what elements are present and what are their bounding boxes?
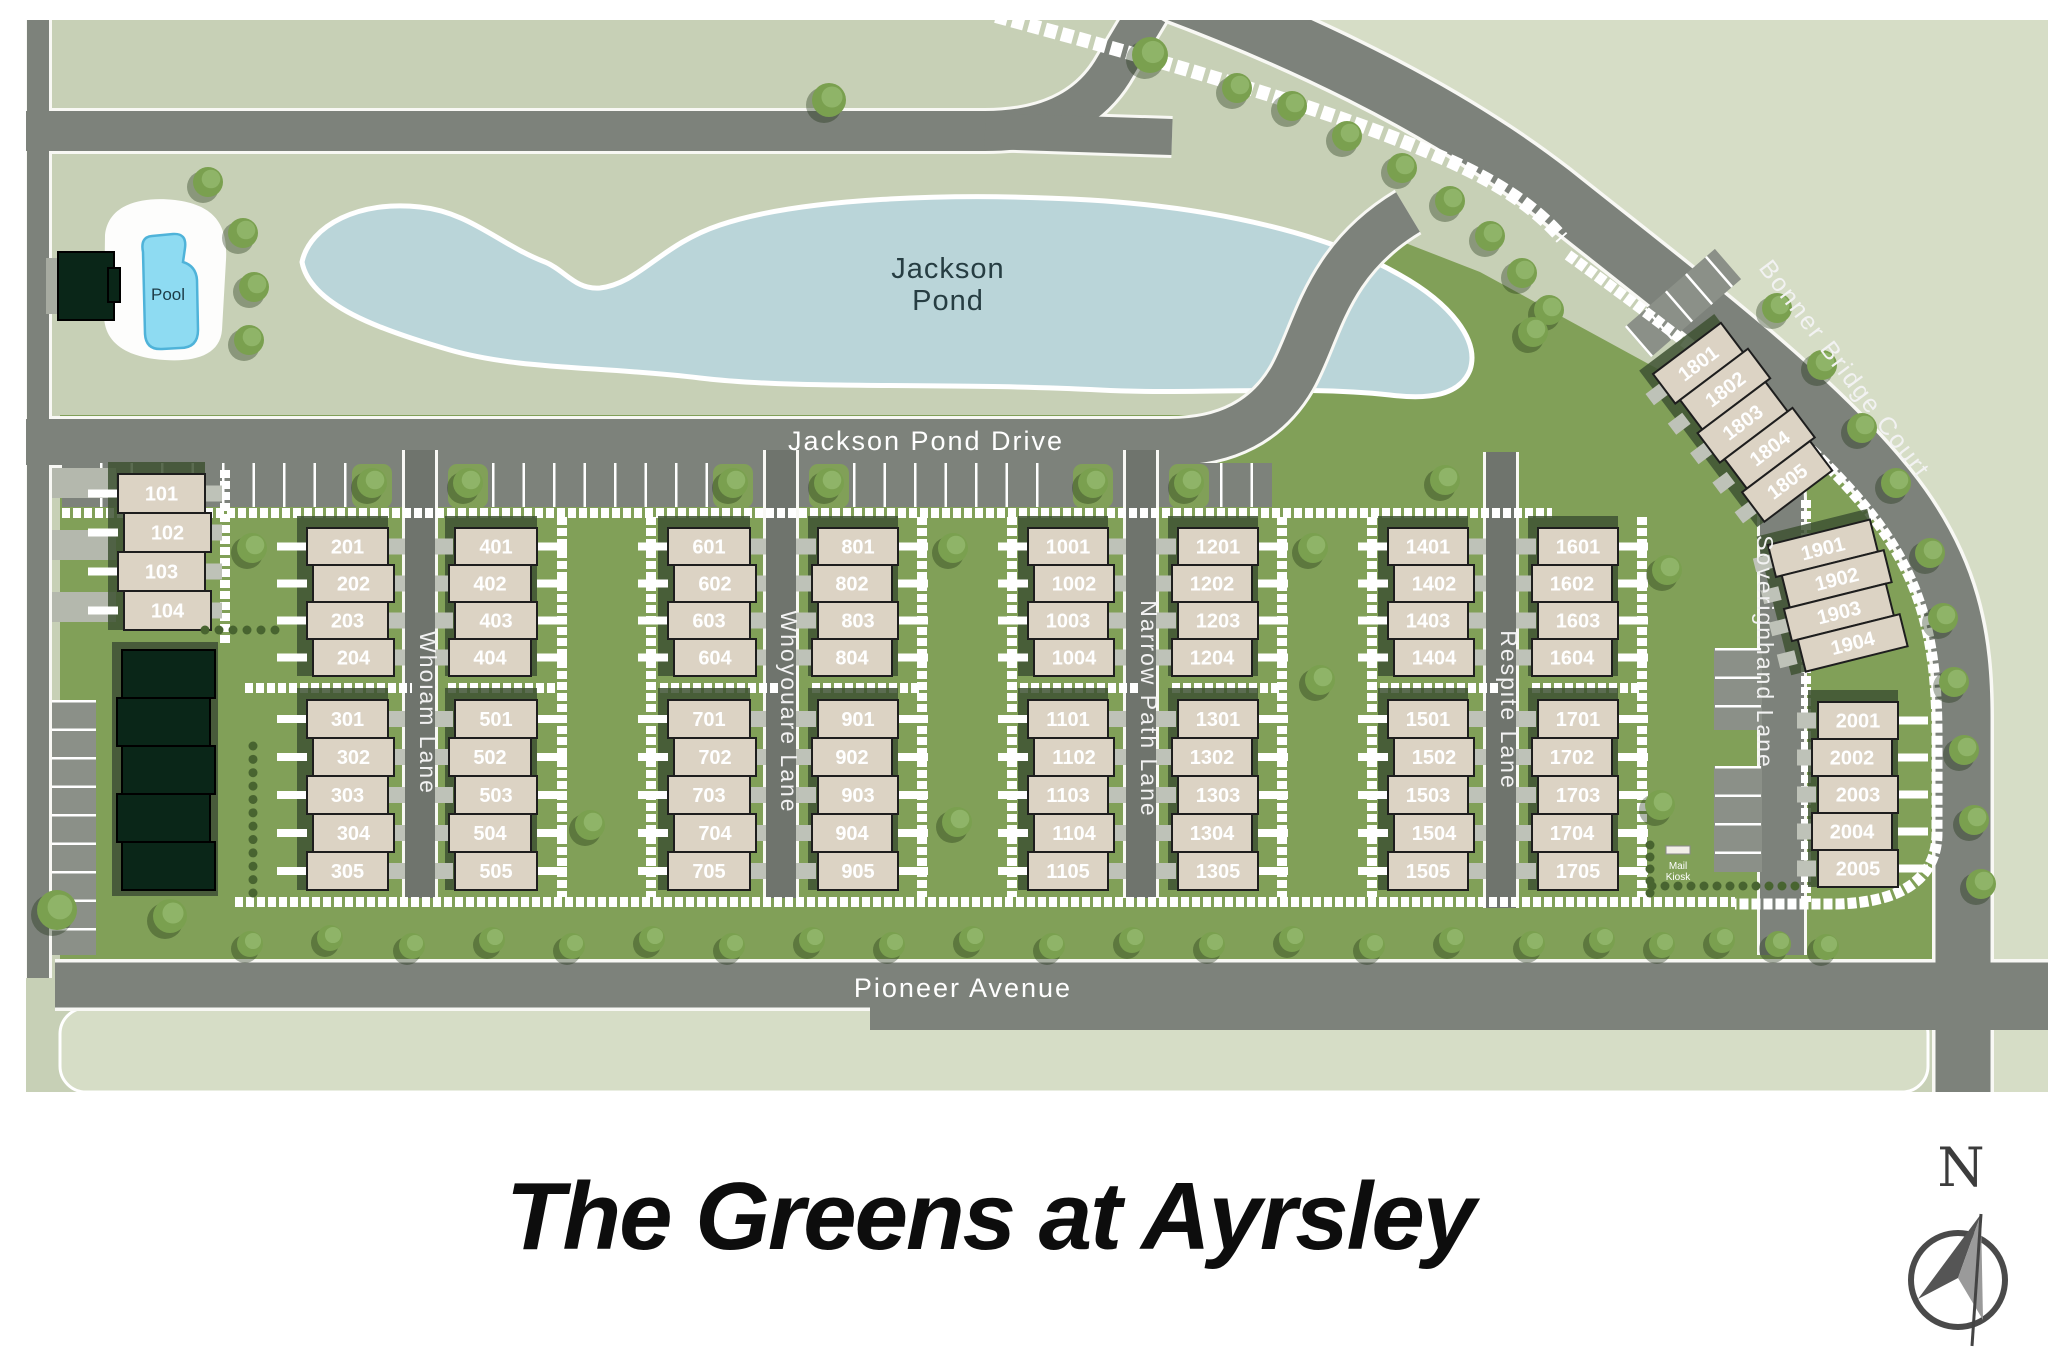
hedge-shrub (249, 822, 258, 831)
unit-label-702: 702 (698, 747, 731, 769)
unit-label-1004: 1004 (1052, 648, 1097, 670)
unit-label-905: 905 (841, 861, 874, 883)
unit-label-204: 204 (337, 648, 371, 670)
unit-label-803: 803 (841, 611, 874, 633)
street-label-whoyouare-lane: Whoyouare Lane (776, 610, 802, 813)
unit-label-604: 604 (698, 648, 732, 670)
hedge-shrub (249, 848, 258, 857)
street-label-soverignhand-lane: Soverignhand Lane (1752, 535, 1778, 769)
unit-label-2005: 2005 (1836, 859, 1881, 881)
site-plan-map: 1011021031042012022032043013023033043054… (0, 0, 2048, 1100)
unit-label-902: 902 (835, 747, 868, 769)
hedge-shrub (249, 862, 258, 871)
unit-label-1505: 1505 (1406, 861, 1451, 883)
unit-label-1604: 1604 (1550, 648, 1595, 670)
unit-label-402: 402 (473, 574, 506, 596)
unit-label-1704: 1704 (1550, 823, 1595, 845)
compass: N (1896, 1138, 2026, 1358)
hedge-shrub (249, 808, 258, 817)
existing-buildings (112, 642, 218, 896)
hedge-shrub (257, 626, 266, 635)
unit-label-201: 201 (331, 537, 364, 559)
unit-label-1603: 1603 (1556, 611, 1601, 633)
unit-label-1703: 1703 (1556, 785, 1601, 807)
unit-label-1502: 1502 (1412, 747, 1457, 769)
site-plan-page: 1011021031042012022032043013023033043054… (0, 0, 2048, 1365)
unit-label-1601: 1601 (1556, 537, 1601, 559)
hedge-shrub (1646, 853, 1655, 862)
existing-building (122, 842, 215, 890)
unit-label-1204: 1204 (1190, 648, 1235, 670)
hedge-shrub (1713, 882, 1722, 891)
block-101: 101102103104 (88, 462, 222, 630)
hedge-shrub (249, 835, 258, 844)
unit-label-504: 504 (473, 823, 507, 845)
existing-building (122, 746, 215, 794)
hedge-shrub (229, 626, 238, 635)
unit-label-802: 802 (835, 574, 868, 596)
unit-label-1201: 1201 (1196, 537, 1241, 559)
unit-label-1303: 1303 (1196, 785, 1241, 807)
unit-label-1203: 1203 (1196, 611, 1241, 633)
unit-label-1403: 1403 (1406, 611, 1451, 633)
unit-label-804: 804 (835, 648, 869, 670)
hedge-shrub (271, 626, 280, 635)
mail-kiosk-label-2: Kiosk (1666, 872, 1691, 883)
unit-label-1104: 1104 (1052, 823, 1096, 845)
unit-label-505: 505 (479, 861, 512, 883)
hedge-shrub (1739, 882, 1748, 891)
unit-label-701: 701 (692, 709, 725, 731)
unit-label-1504: 1504 (1412, 823, 1457, 845)
unit-label-2002: 2002 (1830, 748, 1875, 770)
unit-label-404: 404 (473, 648, 507, 670)
hedge-shrub (1791, 882, 1800, 891)
unit-label-2001: 2001 (1836, 711, 1881, 733)
street-label-whoiam-lane: Whoiam Lane (415, 631, 441, 795)
unit-label-1002: 1002 (1052, 574, 1097, 596)
unit-label-601: 601 (692, 537, 725, 559)
existing-building (117, 794, 210, 842)
pool-label: Pool (151, 285, 185, 304)
unit-label-801: 801 (841, 537, 874, 559)
hedge-shrub (249, 889, 258, 898)
hedge-shrub (249, 755, 258, 764)
unit-label-502: 502 (473, 747, 506, 769)
unit-label-1102: 1102 (1052, 747, 1095, 769)
unit-label-101: 101 (145, 484, 178, 506)
unit-label-1101: 1101 (1046, 709, 1089, 731)
street-label-respite-lane: Respite Lane (1496, 630, 1522, 790)
unit-label-304: 304 (337, 823, 371, 845)
unit-label-1501: 1501 (1406, 709, 1451, 731)
compass-north-label: N (1896, 1138, 2026, 1198)
unit-label-704: 704 (698, 823, 732, 845)
unit-label-303: 303 (331, 785, 364, 807)
hedge-shrub (1646, 865, 1655, 874)
unit-label-403: 403 (479, 611, 512, 633)
hedge-shrub (243, 626, 252, 635)
unit-label-1301: 1301 (1196, 709, 1241, 731)
unit-label-202: 202 (337, 574, 370, 596)
unit-label-602: 602 (698, 574, 731, 596)
unit-label-1702: 1702 (1550, 747, 1595, 769)
unit-label-401: 401 (479, 537, 512, 559)
hedge-shrub (1648, 882, 1657, 891)
unit-label-1701: 1701 (1556, 709, 1601, 731)
mail-kiosk-label-1: Mail (1669, 861, 1687, 872)
unit-label-203: 203 (331, 611, 364, 633)
existing-building (122, 650, 215, 698)
hedge-shrub (249, 768, 258, 777)
unit-label-1402: 1402 (1412, 574, 1457, 596)
unit-label-1401: 1401 (1406, 537, 1451, 559)
unit-label-103: 103 (145, 562, 178, 584)
unit-label-903: 903 (841, 785, 874, 807)
unit-label-2003: 2003 (1836, 785, 1881, 807)
hedge-shrub (215, 626, 224, 635)
hedge-shrub (1752, 882, 1761, 891)
unit-label-901: 901 (841, 709, 874, 731)
unit-label-104: 104 (151, 601, 185, 623)
unit-label-1503: 1503 (1406, 785, 1451, 807)
hedge-shrub (201, 626, 210, 635)
existing-building (117, 698, 210, 746)
unit-label-1404: 1404 (1412, 648, 1457, 670)
unit-label-1105: 1105 (1046, 861, 1089, 883)
unit-label-2004: 2004 (1830, 822, 1875, 844)
street-label-narrow-path-lane: Narrow Path Lane (1136, 600, 1162, 817)
unit-label-1001: 1001 (1046, 537, 1091, 559)
pond-label-2: Pond (912, 285, 984, 317)
unit-label-301: 301 (331, 709, 364, 731)
plan-title: The Greens at Ayrsley (0, 1162, 1980, 1272)
pond-label-1: Jackson (891, 253, 1004, 285)
unit-label-503: 503 (479, 785, 512, 807)
unit-label-302: 302 (337, 747, 370, 769)
unit-label-305: 305 (331, 861, 364, 883)
hedge-shrub (1726, 882, 1735, 891)
hedge-shrub (249, 795, 258, 804)
hedge-shrub (249, 782, 258, 791)
unit-label-904: 904 (835, 823, 869, 845)
hedge-shrub (1765, 882, 1774, 891)
street-label-jackson-pond-drive: Jackson Pond Drive (788, 426, 1064, 456)
clubhouse (46, 252, 120, 320)
unit-label-1003: 1003 (1046, 611, 1091, 633)
unit-label-1705: 1705 (1556, 861, 1601, 883)
street-label-pioneer-avenue: Pioneer Avenue (854, 973, 1072, 1003)
unit-label-703: 703 (692, 785, 725, 807)
hedge-shrub (249, 875, 258, 884)
unit-label-501: 501 (479, 709, 512, 731)
unit-label-705: 705 (692, 861, 725, 883)
compass-rose-icon (1896, 1198, 2026, 1348)
unit-label-1304: 1304 (1190, 823, 1235, 845)
unit-label-603: 603 (692, 611, 725, 633)
unit-label-1302: 1302 (1190, 747, 1235, 769)
unit-label-1202: 1202 (1190, 574, 1235, 596)
hedge-shrub (1646, 841, 1655, 850)
unit-label-102: 102 (151, 523, 184, 545)
unit-label-1602: 1602 (1550, 574, 1595, 596)
hedge-shrub (249, 742, 258, 751)
hedge-shrub (1700, 882, 1709, 891)
unit-label-1103: 1103 (1046, 785, 1089, 807)
hedge-shrub (1778, 882, 1787, 891)
unit-label-1305: 1305 (1196, 861, 1241, 883)
